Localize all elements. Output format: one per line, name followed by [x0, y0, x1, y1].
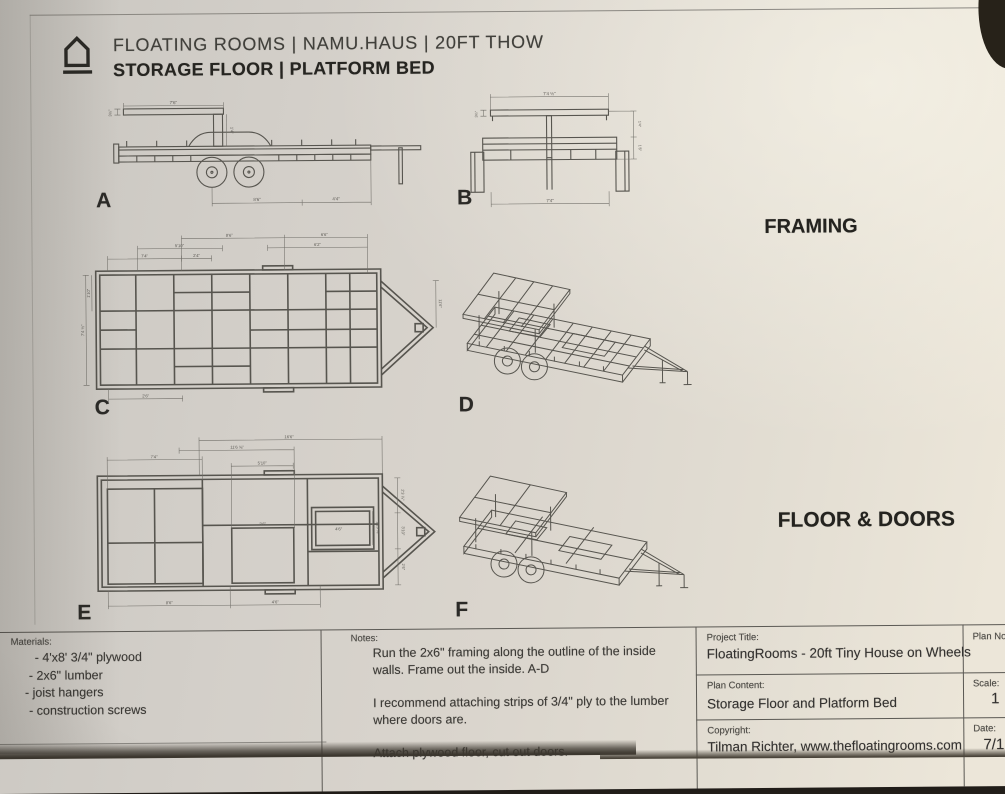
dim-label: 2'6": [401, 563, 406, 570]
drawing-a-label: A: [96, 189, 111, 213]
dim-label: 8'6": [166, 600, 173, 605]
materials-item: - joist hangers: [25, 684, 147, 702]
section-label-floor-doors: FLOOR & DOORS: [778, 507, 956, 532]
notes-paragraph: I recommend attaching strips of 3/4" ply…: [373, 693, 673, 729]
dim-label: 2'3 ⅞": [400, 489, 405, 501]
drawing-d-isometric-framing: [454, 243, 705, 405]
drawing-b-rear-elevation: 7'4 ½" 3½" 1'4" 1'6" 7'4": [450, 89, 646, 213]
notes-label: Notes:: [351, 633, 379, 644]
titleblock-border-top: [0, 624, 1005, 633]
dim-label: 3'10": [401, 526, 406, 535]
dim-label: 11'6 ⅝": [230, 445, 244, 450]
titleblock-divider-2: [695, 627, 697, 789]
dim-label: 7'4": [546, 198, 554, 203]
dim-label: 7'4 ½": [80, 324, 85, 336]
titleblock-divider-1: [321, 629, 323, 791]
dim-label: 2'6": [259, 521, 266, 526]
dim-label: 6'2": [314, 242, 321, 247]
dim-label: 7'4": [141, 253, 148, 258]
dim-label: 4'4": [332, 196, 340, 201]
drawing-a-side-elevation: 7'6" 3½" 1'4" 8'6" 4'4": [93, 98, 424, 213]
materials-label: Materials:: [11, 637, 52, 648]
sheet-border-top: [30, 7, 1005, 16]
copyright-label: Copyright:: [707, 725, 750, 736]
drawing-c-label: C: [95, 396, 110, 420]
dim-label: 1'6": [638, 145, 642, 152]
dim-label: 3½": [474, 110, 478, 117]
project-title-value: FloatingRooms - 20ft Tiny House on Wheel…: [707, 644, 971, 661]
dim-label: 2'4": [193, 253, 200, 258]
page-title: FLOATING ROOMS | NAMU.HAUS | 20FT THOW: [113, 32, 544, 56]
materials-list: - 4'x8' 3/4" plywood - 2x6" lumber - joi…: [29, 649, 147, 720]
drawing-f-isometric-floor: [451, 450, 702, 612]
dim-label: 4'6": [272, 599, 279, 604]
dim-label: 8'6": [253, 197, 261, 202]
sheet-border-left: [30, 15, 36, 625]
plan-photo: { "header": { "logo": "house-icon", "lin…: [0, 0, 1005, 754]
titleblock-row-divider-1: [696, 672, 1005, 676]
plan-content-label: Plan Content:: [707, 680, 765, 691]
dim-label: 5'10": [175, 243, 185, 248]
dim-label: 1'10 ⅝": [376, 521, 381, 535]
dim-label: 7'6": [170, 100, 178, 105]
title-block-header: FLOATING ROOMS | NAMU.HAUS | 20FT THOW S…: [113, 32, 544, 81]
materials-item: - construction screws: [29, 701, 147, 719]
drawing-c-framing-plan: 8'6" 6'6" 5'10" 6'2" 7'4" 2'4" 7'4 ½" 1'…: [77, 229, 443, 417]
dim-label: 5'10": [258, 460, 268, 465]
dim-label: 6'6": [321, 232, 328, 237]
drawing-e-floor-plan: 16'6" 11'6 ⅝" 7'4" 5'10" 2'6" 4'6" 1'10 …: [79, 429, 445, 622]
materials-item: - 2x6" lumber: [29, 666, 147, 684]
drawing-e-label: E: [77, 601, 91, 625]
date-label: Date:: [973, 723, 996, 734]
drawing-f-label: F: [455, 598, 468, 622]
plan-no-label: Plan No.:: [973, 631, 1005, 642]
drawing-d-label: D: [459, 393, 474, 417]
section-label-framing: FRAMING: [764, 215, 858, 239]
materials-item: - 4'x8' 3/4" plywood: [29, 649, 147, 667]
dim-label: 4'6": [335, 526, 342, 531]
notes-paragraph: Run the 2x6" framing along the outline o…: [373, 643, 673, 679]
dim-label: 2'6": [142, 393, 149, 398]
plan-sheet: FLOATING ROOMS | NAMU.HAUS | 20FT THOW S…: [0, 0, 1005, 794]
dim-label: 1'4": [230, 127, 235, 134]
dim-label: 7'4": [151, 454, 158, 459]
dim-label: 7'4 ½": [543, 90, 556, 96]
scale-value: 1: [991, 690, 999, 707]
dim-label: 3½": [107, 109, 112, 117]
dim-label: 1'10": [86, 288, 91, 297]
dim-label: 1'4": [638, 121, 642, 128]
drawing-b-label: B: [457, 186, 472, 210]
project-title-label: Project Title:: [707, 632, 759, 643]
dim-label: 8'6": [226, 233, 233, 238]
dim-label: 11'6": [438, 299, 443, 308]
dim-label: 16'6": [284, 434, 294, 439]
plan-content-value: Storage Floor and Platform Bed: [707, 695, 897, 711]
house-logo-icon: [58, 33, 98, 80]
scale-label: Scale:: [973, 678, 999, 689]
page-subtitle: STORAGE FLOOR | PLATFORM BED: [113, 57, 544, 81]
titleblock-row-divider-2: [696, 717, 1005, 721]
